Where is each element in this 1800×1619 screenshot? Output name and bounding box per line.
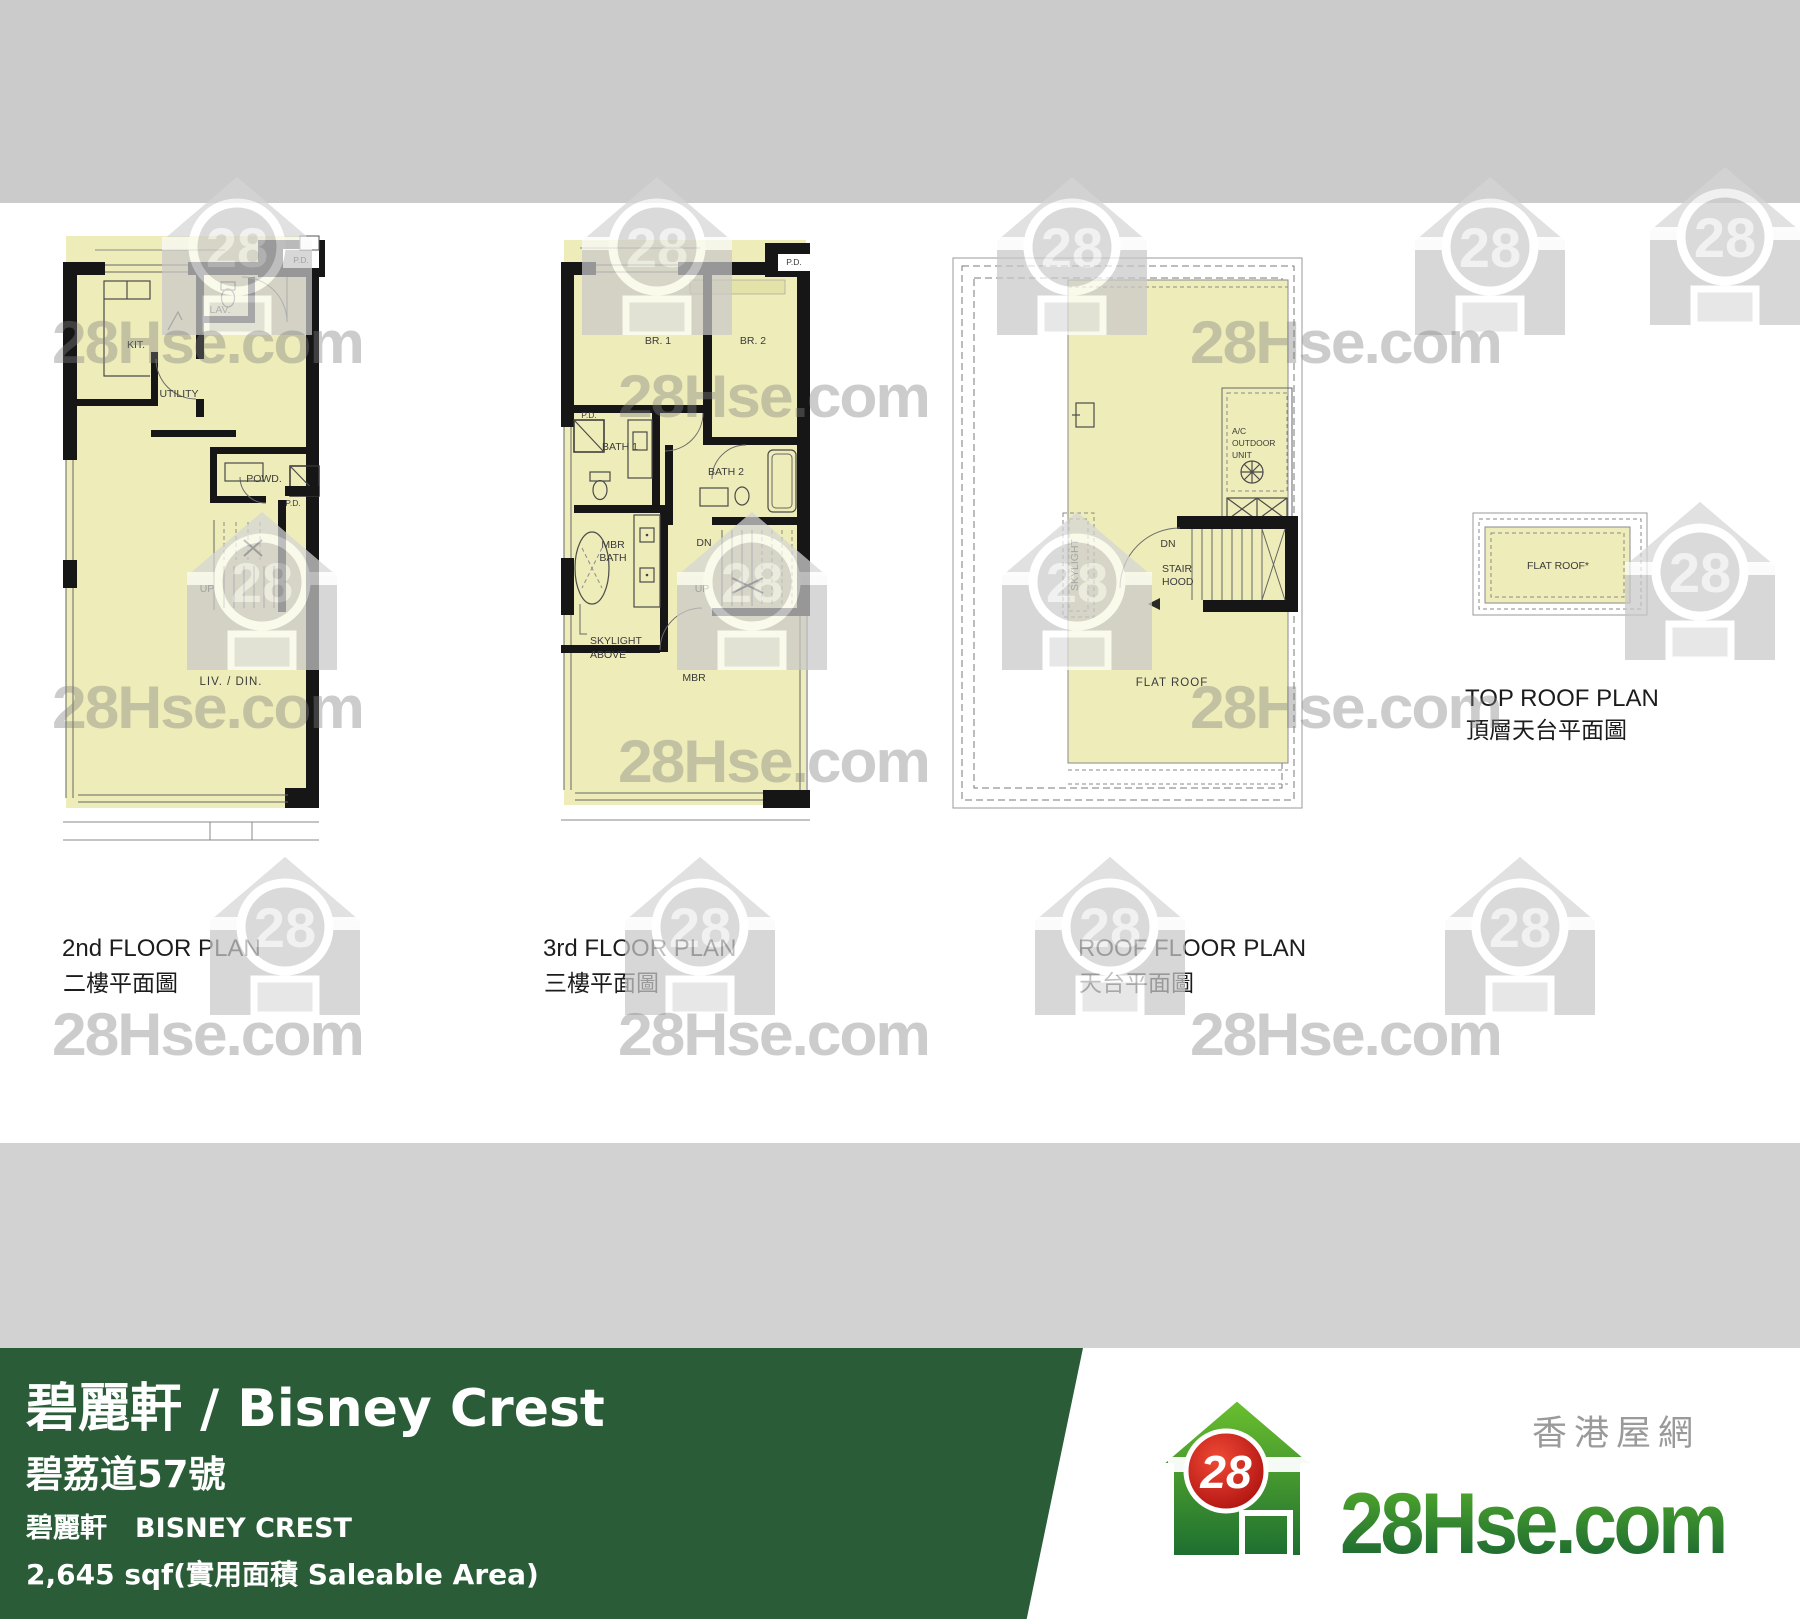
plan4-caption-zh: 頂層天台平面圖 — [1466, 718, 1627, 744]
plan1-label-pd-top: P.D. — [293, 255, 308, 265]
plan3-caption-en: ROOF FLOOR PLAN — [1078, 935, 1306, 962]
property-name-en: BISNEY CREST — [135, 1513, 352, 1544]
property-address: 碧荔道57號 — [26, 1444, 226, 1498]
plan3-label-ac-3: UNIT — [1232, 450, 1252, 460]
plan2-label-mbr: MBR — [682, 672, 706, 684]
plan1-label-up: UP — [200, 583, 215, 595]
plan-2nd-floor: P.D. LAV. KIT. UTILITY POWD. P.D. UP LIV… — [62, 236, 325, 997]
plan2-caption-zh: 三樓平面圖 — [544, 971, 659, 997]
plan2-label-mbrbath-1: MBR — [601, 539, 625, 551]
floorplan-sheet: P.D. LAV. KIT. UTILITY POWD. P.D. UP LIV… — [0, 0, 1800, 1619]
plan2-label-br1: BR. 1 — [645, 335, 671, 347]
plan-top-roof: FLAT ROOF* TOP ROOF PLAN 頂層天台平面圖 — [1465, 513, 1659, 744]
plan3-label-ac-1: A/C — [1232, 426, 1246, 436]
28hse-brand-logo: 28 28Hse.com 香港屋網 — [1140, 1385, 1760, 1595]
plan2-label-pd-top: P.D. — [786, 257, 801, 267]
plan3-label-stair-2: HOOD — [1162, 576, 1194, 588]
plan3-label-skylight: SKYLIGHT — [1069, 538, 1081, 591]
property-name-zh: 碧麗軒 — [26, 1513, 107, 1544]
plan2-label-pd-left: P.D. — [581, 410, 596, 420]
plan2-label-dn: DN — [696, 537, 711, 549]
plan1-label-pd-mid: P.D. — [285, 498, 300, 508]
plan-3rd-floor: P.D. BR. 1 BR. 2 P.D. BATH 1 BATH 2 MBR … — [543, 240, 812, 997]
brand-badge-text: 28 — [1199, 1446, 1252, 1498]
plan2-caption-en: 3rd FLOOR PLAN — [543, 935, 736, 962]
brand-logo-text: 28Hse.com — [1340, 1475, 1725, 1572]
plan3-label-dn: DN — [1160, 538, 1175, 550]
property-name-line: 碧麗軒BISNEY CREST — [26, 1506, 352, 1545]
plan1-label-livdin: LIV. / DIN. — [200, 676, 263, 688]
brand-tagline: 香港屋網 — [1532, 1414, 1700, 1454]
plan2-label-br2: BR. 2 — [740, 335, 766, 347]
plan2-label-skylight-1: SKYLIGHT — [590, 635, 643, 647]
plan-roof-floor: A/C OUTDOOR UNIT DN STAIR HOOD SKYLIGHT … — [953, 258, 1306, 997]
plan1-caption-en: 2nd FLOOR PLAN — [62, 935, 261, 962]
property-title: 碧麗軒 / Bisney Crest — [26, 1366, 605, 1441]
plan1-label-utility: UTILITY — [159, 388, 198, 400]
plan2-label-mbrbath-2: BATH — [599, 552, 626, 564]
plan2-label-bath1: BATH 1 — [602, 441, 638, 453]
plan4-label-flatroof: FLAT ROOF* — [1527, 560, 1589, 572]
plan3-caption-zh: 天台平面圖 — [1079, 971, 1194, 997]
plan2-label-bath2: BATH 2 — [708, 466, 744, 478]
plan2-label-skylight-2: ABOVE — [590, 649, 626, 661]
plan2-label-up: UP — [695, 583, 710, 595]
28hse-house-logo-icon: 28 — [1160, 1399, 1314, 1557]
property-saleable-area: 2,645 sqf(實用面積 Saleable Area) — [26, 1553, 539, 1593]
plan1-caption-zh: 二樓平面圖 — [63, 971, 178, 997]
plan4-caption-en: TOP ROOF PLAN — [1465, 685, 1659, 712]
plan1-label-lav: LAV. — [209, 304, 230, 316]
plan3-label-flatroof: FLAT ROOF — [1136, 677, 1208, 689]
plan1-label-powd: POWD. — [246, 473, 282, 485]
plan3-label-ac-2: OUTDOOR — [1232, 438, 1275, 448]
plan3-label-stair-1: STAIR — [1162, 563, 1193, 575]
plan1-label-kit: KIT. — [127, 339, 145, 351]
